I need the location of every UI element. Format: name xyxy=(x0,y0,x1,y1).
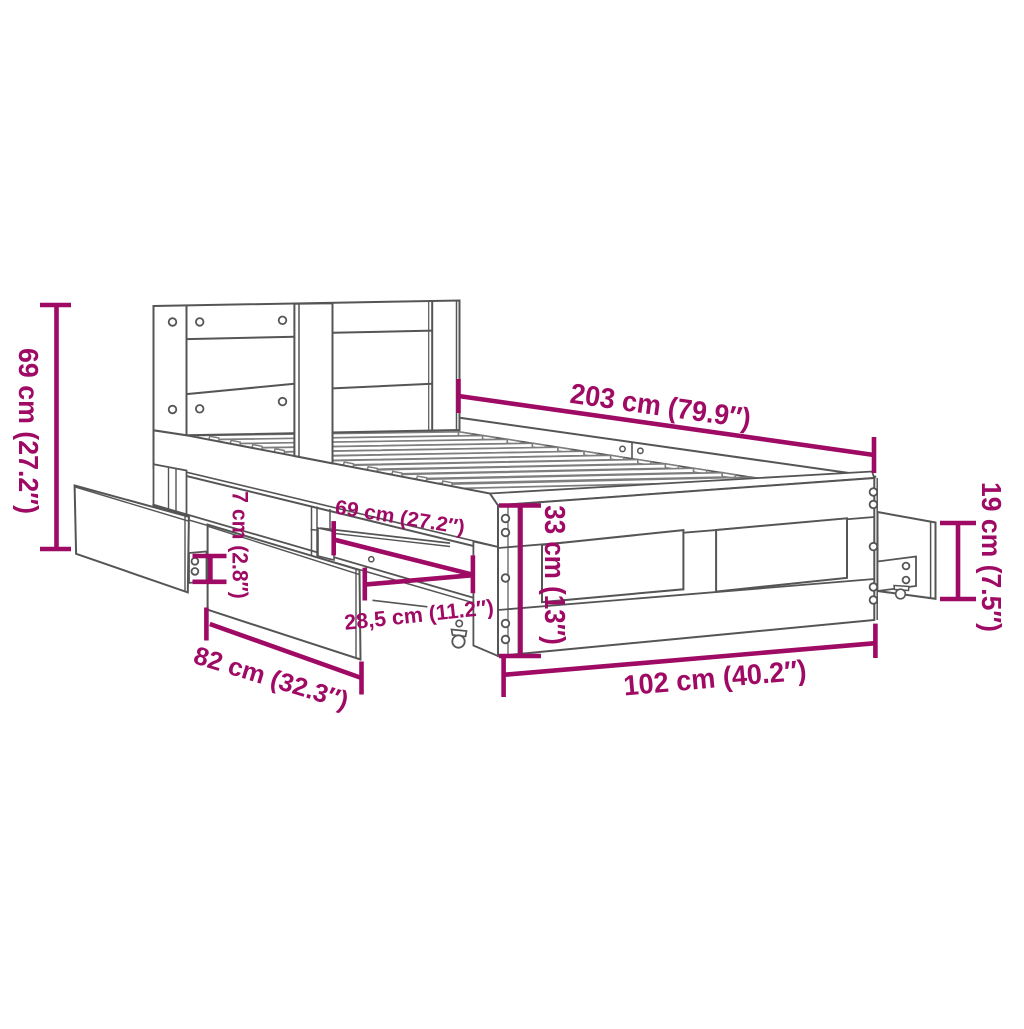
svg-text:19 cm (7.5″): 19 cm (7.5″) xyxy=(976,482,1007,632)
svg-text:69 cm (27.2″): 69 cm (27.2″) xyxy=(13,348,44,514)
svg-text:33 cm (13″): 33 cm (13″) xyxy=(538,505,570,645)
svg-text:7 cm (2.8″): 7 cm (2.8″) xyxy=(228,491,253,599)
